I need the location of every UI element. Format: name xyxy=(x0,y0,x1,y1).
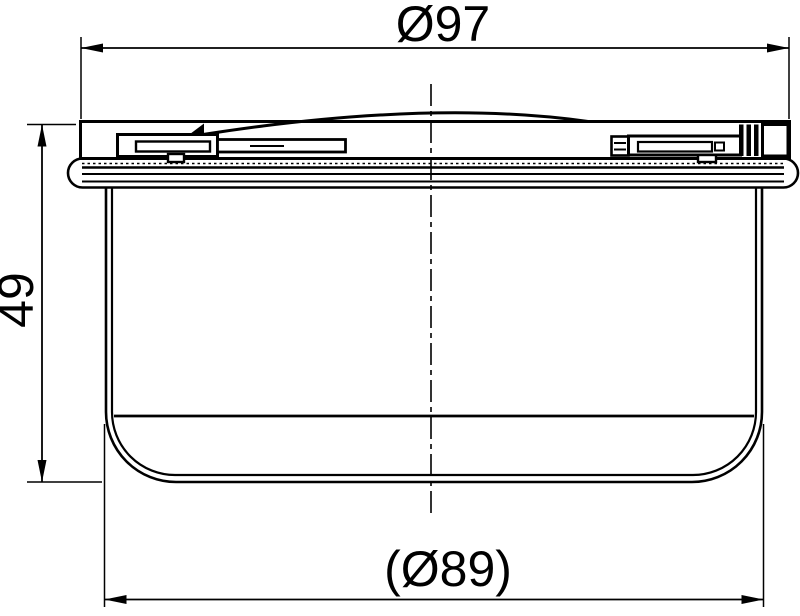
latch-hatching xyxy=(739,125,759,157)
right-latch-tab xyxy=(698,155,716,162)
dimension-height: 49 xyxy=(0,125,102,483)
dimension-label-top: Ø97 xyxy=(396,0,491,52)
arrow-up-icon xyxy=(38,125,47,147)
hatch-bar xyxy=(747,125,752,157)
dimension-bottom-diameter: (Ø89) xyxy=(105,424,764,607)
technical-drawing: Ø97 49 (Ø89) xyxy=(0,0,800,616)
lid-dome xyxy=(203,113,588,135)
lid-assembly xyxy=(81,113,790,162)
arrow-left-icon xyxy=(81,44,103,53)
cup-body xyxy=(106,188,762,482)
arrow-down-icon xyxy=(38,460,47,482)
dimension-top-diameter: Ø97 xyxy=(81,0,789,119)
drawing-canvas: Ø97 49 (Ø89) xyxy=(0,0,800,616)
right-latch-end-block xyxy=(612,137,629,156)
cup-outer-wall xyxy=(106,188,762,482)
arrow-right-icon xyxy=(742,595,764,604)
right-latch-slot xyxy=(638,142,712,152)
right-latch xyxy=(612,125,789,163)
left-latch-slot xyxy=(136,142,210,152)
hatch-bar xyxy=(754,125,759,157)
arrow-right-icon xyxy=(767,44,789,53)
hatch-bar xyxy=(739,125,744,157)
dimension-label-height: 49 xyxy=(0,272,44,328)
right-latch-mark xyxy=(715,143,724,151)
cup-inner-wall xyxy=(112,188,756,475)
dimension-label-bottom: (Ø89) xyxy=(384,541,512,597)
right-latch-end-box xyxy=(763,125,789,157)
left-latch-tab xyxy=(168,154,184,162)
arrow-left-icon xyxy=(105,595,127,604)
